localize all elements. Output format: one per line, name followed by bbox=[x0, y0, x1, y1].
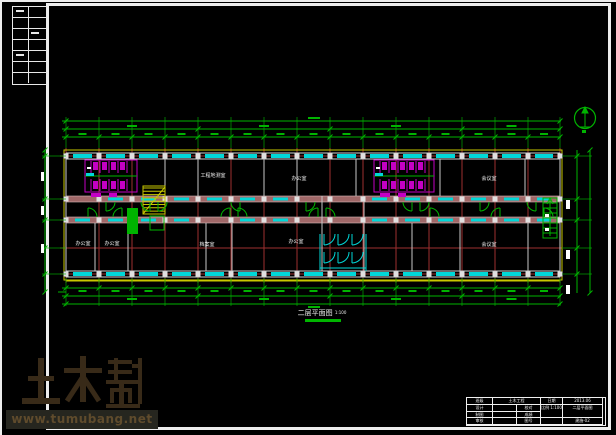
titleblock-cell: 校对 bbox=[517, 405, 541, 412]
title-block: 班级 土木工程 日期 2013.06 设计 校对 比例 1:100 二层平面图 … bbox=[466, 397, 606, 426]
drawing-scale: 1:100 bbox=[335, 310, 347, 315]
dimensions-right bbox=[562, 148, 593, 296]
drawing-title-text: 二层平面图 bbox=[298, 309, 333, 317]
titleblock-cell: 图号 bbox=[517, 418, 541, 425]
drawing-title: 二层平面图 1:100 bbox=[298, 309, 347, 317]
titleblock-cell: 2013.06 bbox=[563, 398, 603, 405]
room-label: 工程地测室 bbox=[200, 173, 225, 179]
windows bbox=[73, 154, 553, 276]
titleblock-cell: 设计 bbox=[467, 405, 493, 412]
watermark-logo bbox=[22, 356, 172, 410]
interior-partitions bbox=[95, 159, 528, 271]
room-label: 办公室 bbox=[291, 176, 306, 182]
title-underline bbox=[305, 319, 341, 322]
titleblock-cell: 土木工程 bbox=[493, 398, 541, 405]
north-arrow bbox=[575, 107, 596, 133]
building-outline bbox=[64, 150, 562, 281]
room-label: 办公室 bbox=[288, 239, 303, 245]
titleblock-cell: 班级 bbox=[467, 398, 493, 405]
titleblock-cell: 建施-02 bbox=[563, 418, 603, 425]
exterior-walls bbox=[66, 153, 560, 277]
room-label: 会议室 bbox=[481, 242, 496, 248]
dimensions-left bbox=[41, 148, 66, 295]
dimensions-top bbox=[62, 117, 563, 148]
stair-right bbox=[543, 198, 557, 238]
cad-sheet-view: 工程地测室 办公室 会议室 办公室 办公室 档案室 办公室 会议室 二层平面图 … bbox=[0, 0, 616, 435]
entrance-doors bbox=[320, 234, 366, 271]
titleblock-cell: 比例 1:100 bbox=[541, 405, 563, 418]
titleblock-cell bbox=[541, 418, 563, 425]
titleblock-cell: 审核 bbox=[467, 418, 493, 425]
room-label: 办公室 bbox=[104, 241, 119, 247]
columns bbox=[64, 154, 563, 277]
dimensions-bottom bbox=[62, 278, 563, 308]
titleblock-cell bbox=[493, 405, 517, 412]
titleblock-name-cell: 二层平面图 bbox=[563, 405, 603, 418]
room-label: 办公室 bbox=[75, 241, 90, 247]
doors bbox=[88, 202, 553, 217]
titleblock-cell: 日期 bbox=[541, 398, 563, 405]
room-label: 档案室 bbox=[199, 242, 214, 248]
toilet-blocks bbox=[85, 160, 434, 197]
room-label: 会议室 bbox=[481, 176, 496, 182]
titleblock-cell bbox=[493, 418, 517, 425]
watermark-url: www.tumubang.net bbox=[6, 410, 158, 429]
